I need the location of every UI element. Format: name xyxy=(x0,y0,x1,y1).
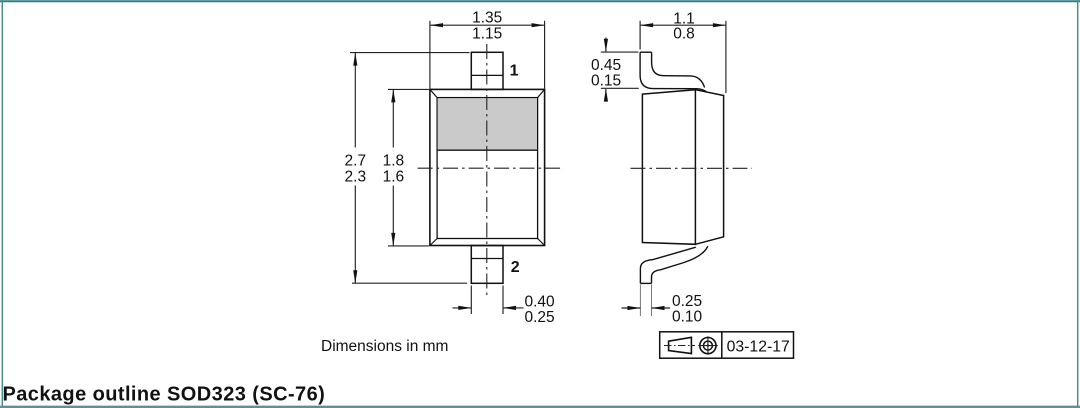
svg-text:Package outline SOD323 (SC-76): Package outline SOD323 (SC-76) xyxy=(3,383,326,405)
svg-text:1: 1 xyxy=(510,63,519,80)
svg-text:1.6: 1.6 xyxy=(383,168,405,185)
svg-text:1.8: 1.8 xyxy=(383,153,405,170)
svg-text:1.15: 1.15 xyxy=(472,25,502,42)
svg-text:1.35: 1.35 xyxy=(472,10,502,27)
svg-text:2.3: 2.3 xyxy=(345,168,367,185)
svg-text:Dimensions in mm: Dimensions in mm xyxy=(321,338,448,355)
svg-text:2.7: 2.7 xyxy=(345,153,367,170)
svg-text:0.45: 0.45 xyxy=(591,57,621,74)
svg-text:0.8: 0.8 xyxy=(673,25,695,42)
svg-text:2: 2 xyxy=(511,259,520,276)
svg-text:0.25: 0.25 xyxy=(525,309,555,326)
svg-text:0.15: 0.15 xyxy=(591,72,621,89)
svg-text:03-12-17: 03-12-17 xyxy=(727,338,790,355)
svg-text:0.10: 0.10 xyxy=(672,308,703,325)
